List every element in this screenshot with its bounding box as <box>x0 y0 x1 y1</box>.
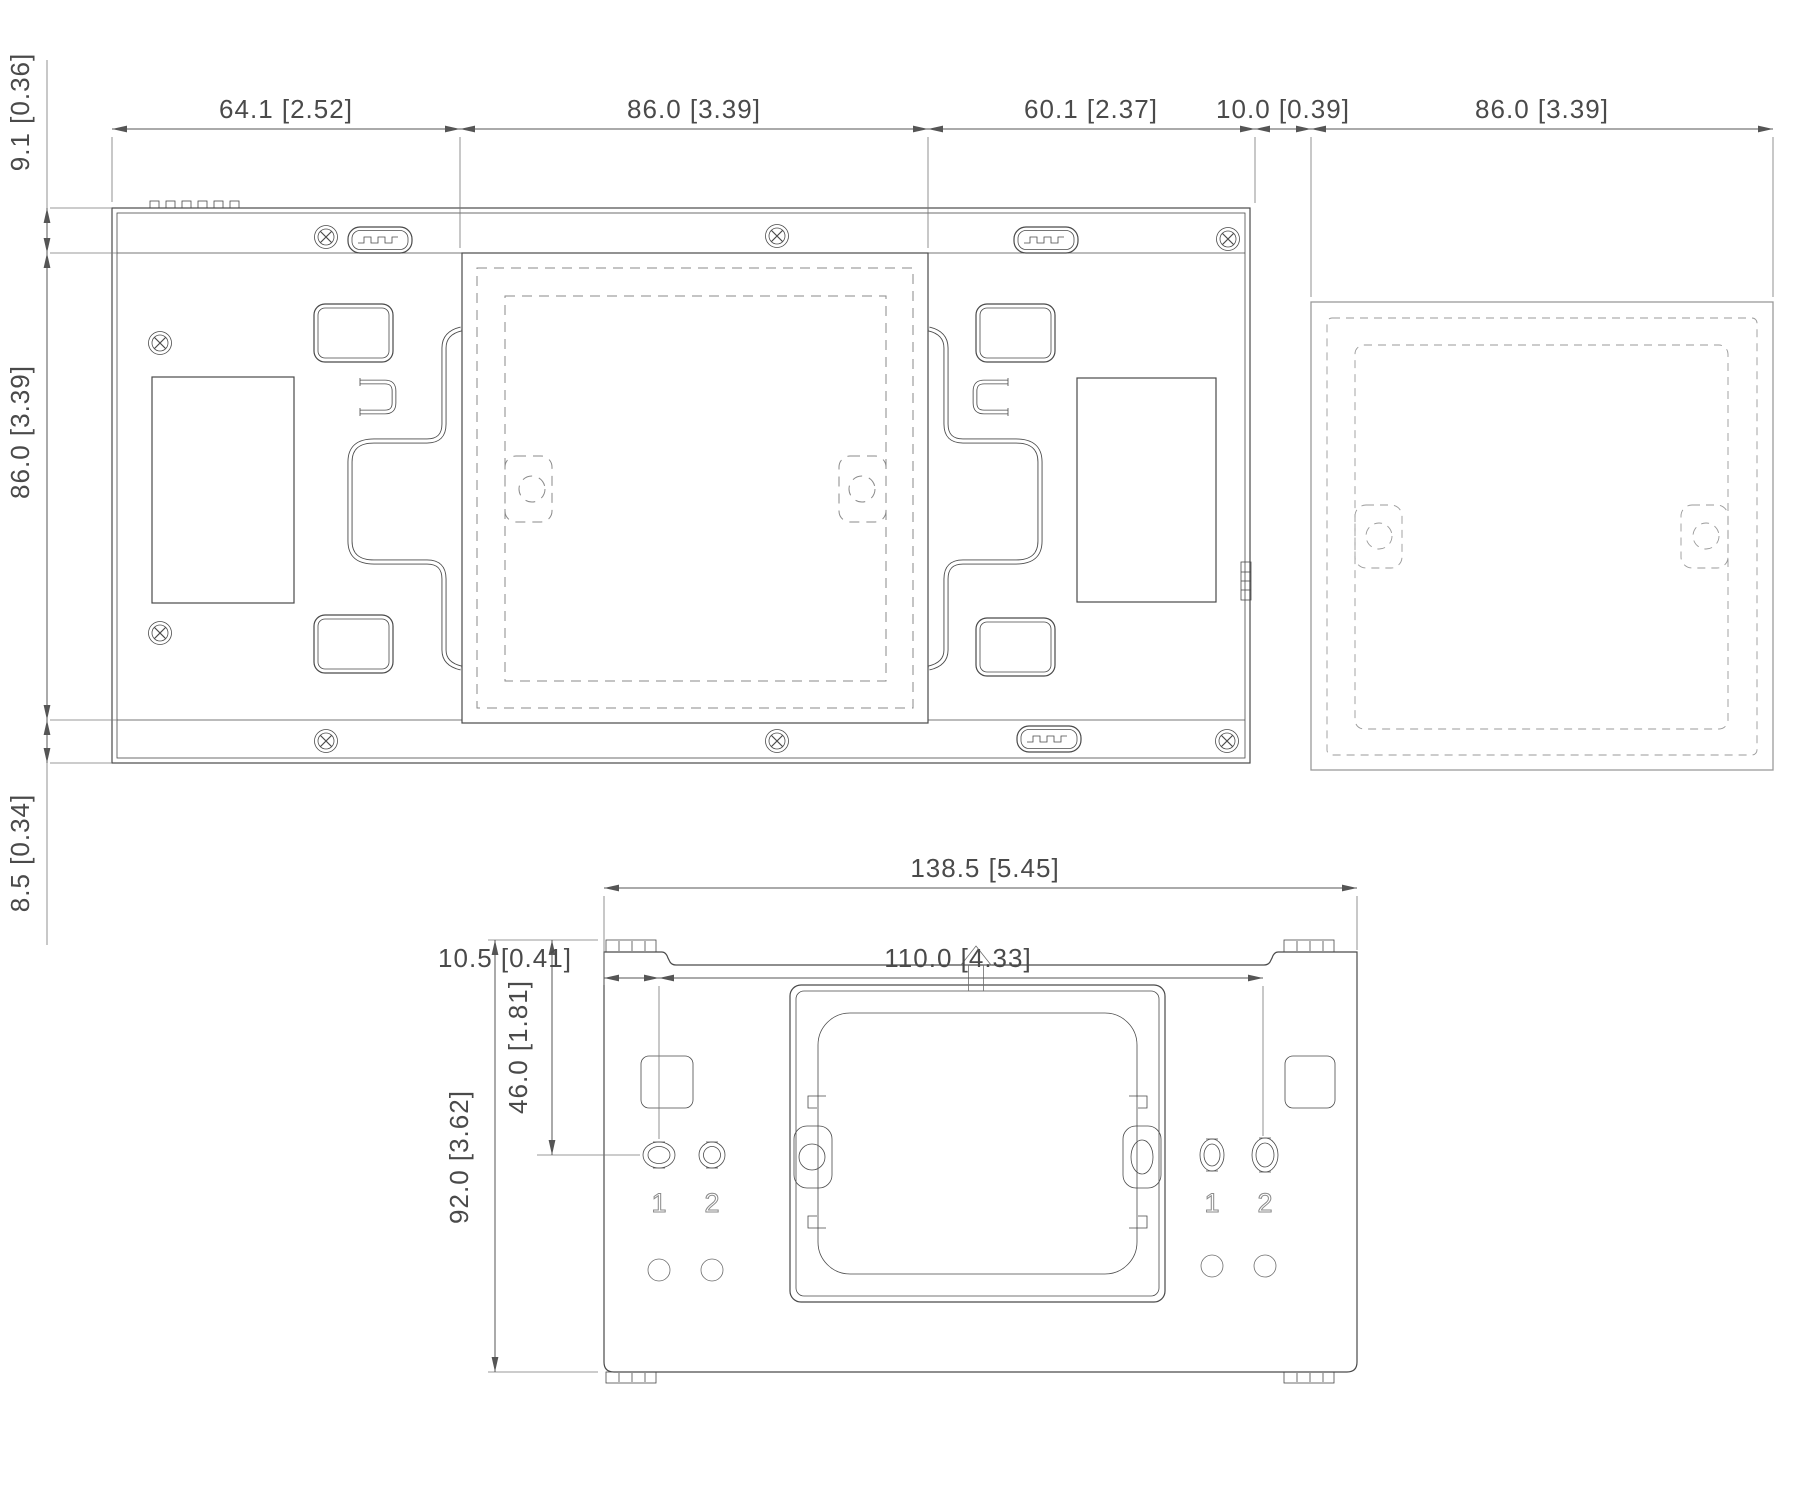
keyhole-left-1 <box>643 1142 675 1168</box>
screw-hole-outline <box>519 476 545 502</box>
dim-label: 10.5 [0.41] <box>438 943 572 973</box>
screw-hole <box>648 1259 670 1281</box>
screw-head <box>1216 730 1239 753</box>
latch-slot <box>348 227 412 253</box>
bracket-corner-tab <box>606 940 1334 1383</box>
cutout <box>976 618 1055 676</box>
screw-head <box>315 226 338 249</box>
cutout <box>976 304 1055 362</box>
dim-label: 60.1 [2.37] <box>1024 94 1158 124</box>
screw-head <box>1217 228 1240 251</box>
dim-label: 8.5 [0.34] <box>5 794 35 912</box>
frame-slot <box>1131 1140 1153 1174</box>
dim-label: 10.0 [0.39] <box>1216 94 1350 124</box>
screw-head <box>149 332 172 355</box>
hole-label: 2 <box>1257 1188 1272 1218</box>
screw-hole-outline <box>1693 523 1719 549</box>
latch-slot <box>1017 726 1081 752</box>
screw-head <box>315 730 338 753</box>
dim-label: 92.0 [3.62] <box>444 1090 474 1224</box>
screw-pad-outline <box>1681 505 1728 568</box>
frame-tab <box>794 1126 832 1188</box>
screw-hole <box>1254 1255 1276 1277</box>
bracket-frame <box>790 985 1165 1302</box>
keyhole-right-1 <box>1200 1139 1224 1171</box>
dim-label: 86.0 [3.39] <box>5 365 35 499</box>
screw-hole-outline <box>849 476 875 502</box>
dim-label: 9.1 [0.36] <box>5 53 35 171</box>
frame-tab <box>1123 1126 1161 1188</box>
battery-opening <box>1077 378 1216 602</box>
wall-box-view <box>1311 302 1773 770</box>
cutout <box>641 1056 693 1108</box>
cutout <box>314 304 393 362</box>
dim-label: 86.0 [3.39] <box>1475 94 1609 124</box>
screw-head <box>766 225 789 248</box>
screw-head <box>766 730 789 753</box>
dim-label: 138.5 [5.45] <box>910 853 1059 883</box>
rear-view-outline <box>112 208 1250 763</box>
rear-view <box>112 201 1251 763</box>
drawing-page: 1 2 1 2 64.1 [2.52] 86.0 [3.39] 60.1 [2.… <box>0 0 1800 1500</box>
hole-label: 1 <box>1204 1188 1219 1218</box>
latch-slot <box>1014 227 1078 253</box>
battery-opening <box>152 377 294 603</box>
screw-hole <box>1201 1255 1223 1277</box>
technical-drawing: 1 2 1 2 64.1 [2.52] 86.0 [3.39] 60.1 [2.… <box>0 0 1800 1500</box>
screw-head <box>149 622 172 645</box>
rear-view-inner-outline <box>117 213 1245 758</box>
dimensions: 64.1 [2.52] 86.0 [3.39] 60.1 [2.37] 10.0… <box>5 53 1773 1372</box>
dim-label: 46.0 [1.81] <box>503 980 533 1114</box>
cutout <box>314 615 393 673</box>
top-edge-tabs <box>150 201 239 208</box>
wall-box-outline <box>1311 302 1773 770</box>
cutout <box>1285 1056 1335 1108</box>
wire-clip <box>975 378 1008 416</box>
hole-label: 1 <box>651 1188 666 1218</box>
dim-label: 110.0 [4.33] <box>884 943 1031 973</box>
hole-label: 2 <box>704 1188 719 1218</box>
bracket-view: 1 2 1 2 <box>604 940 1357 1383</box>
wire-clip <box>360 378 394 416</box>
keyhole-right-2 <box>1252 1138 1278 1172</box>
screw-hole-outline <box>1366 523 1392 549</box>
frame-hole <box>799 1144 825 1170</box>
dim-label: 64.1 [2.52] <box>219 94 353 124</box>
screw-pad-outline <box>1355 505 1402 568</box>
mount-area <box>462 253 928 723</box>
keyhole-left-2 <box>699 1142 725 1168</box>
screw-hole <box>701 1259 723 1281</box>
screw-pad-outline <box>839 456 886 522</box>
dim-label: 86.0 [3.39] <box>627 94 761 124</box>
